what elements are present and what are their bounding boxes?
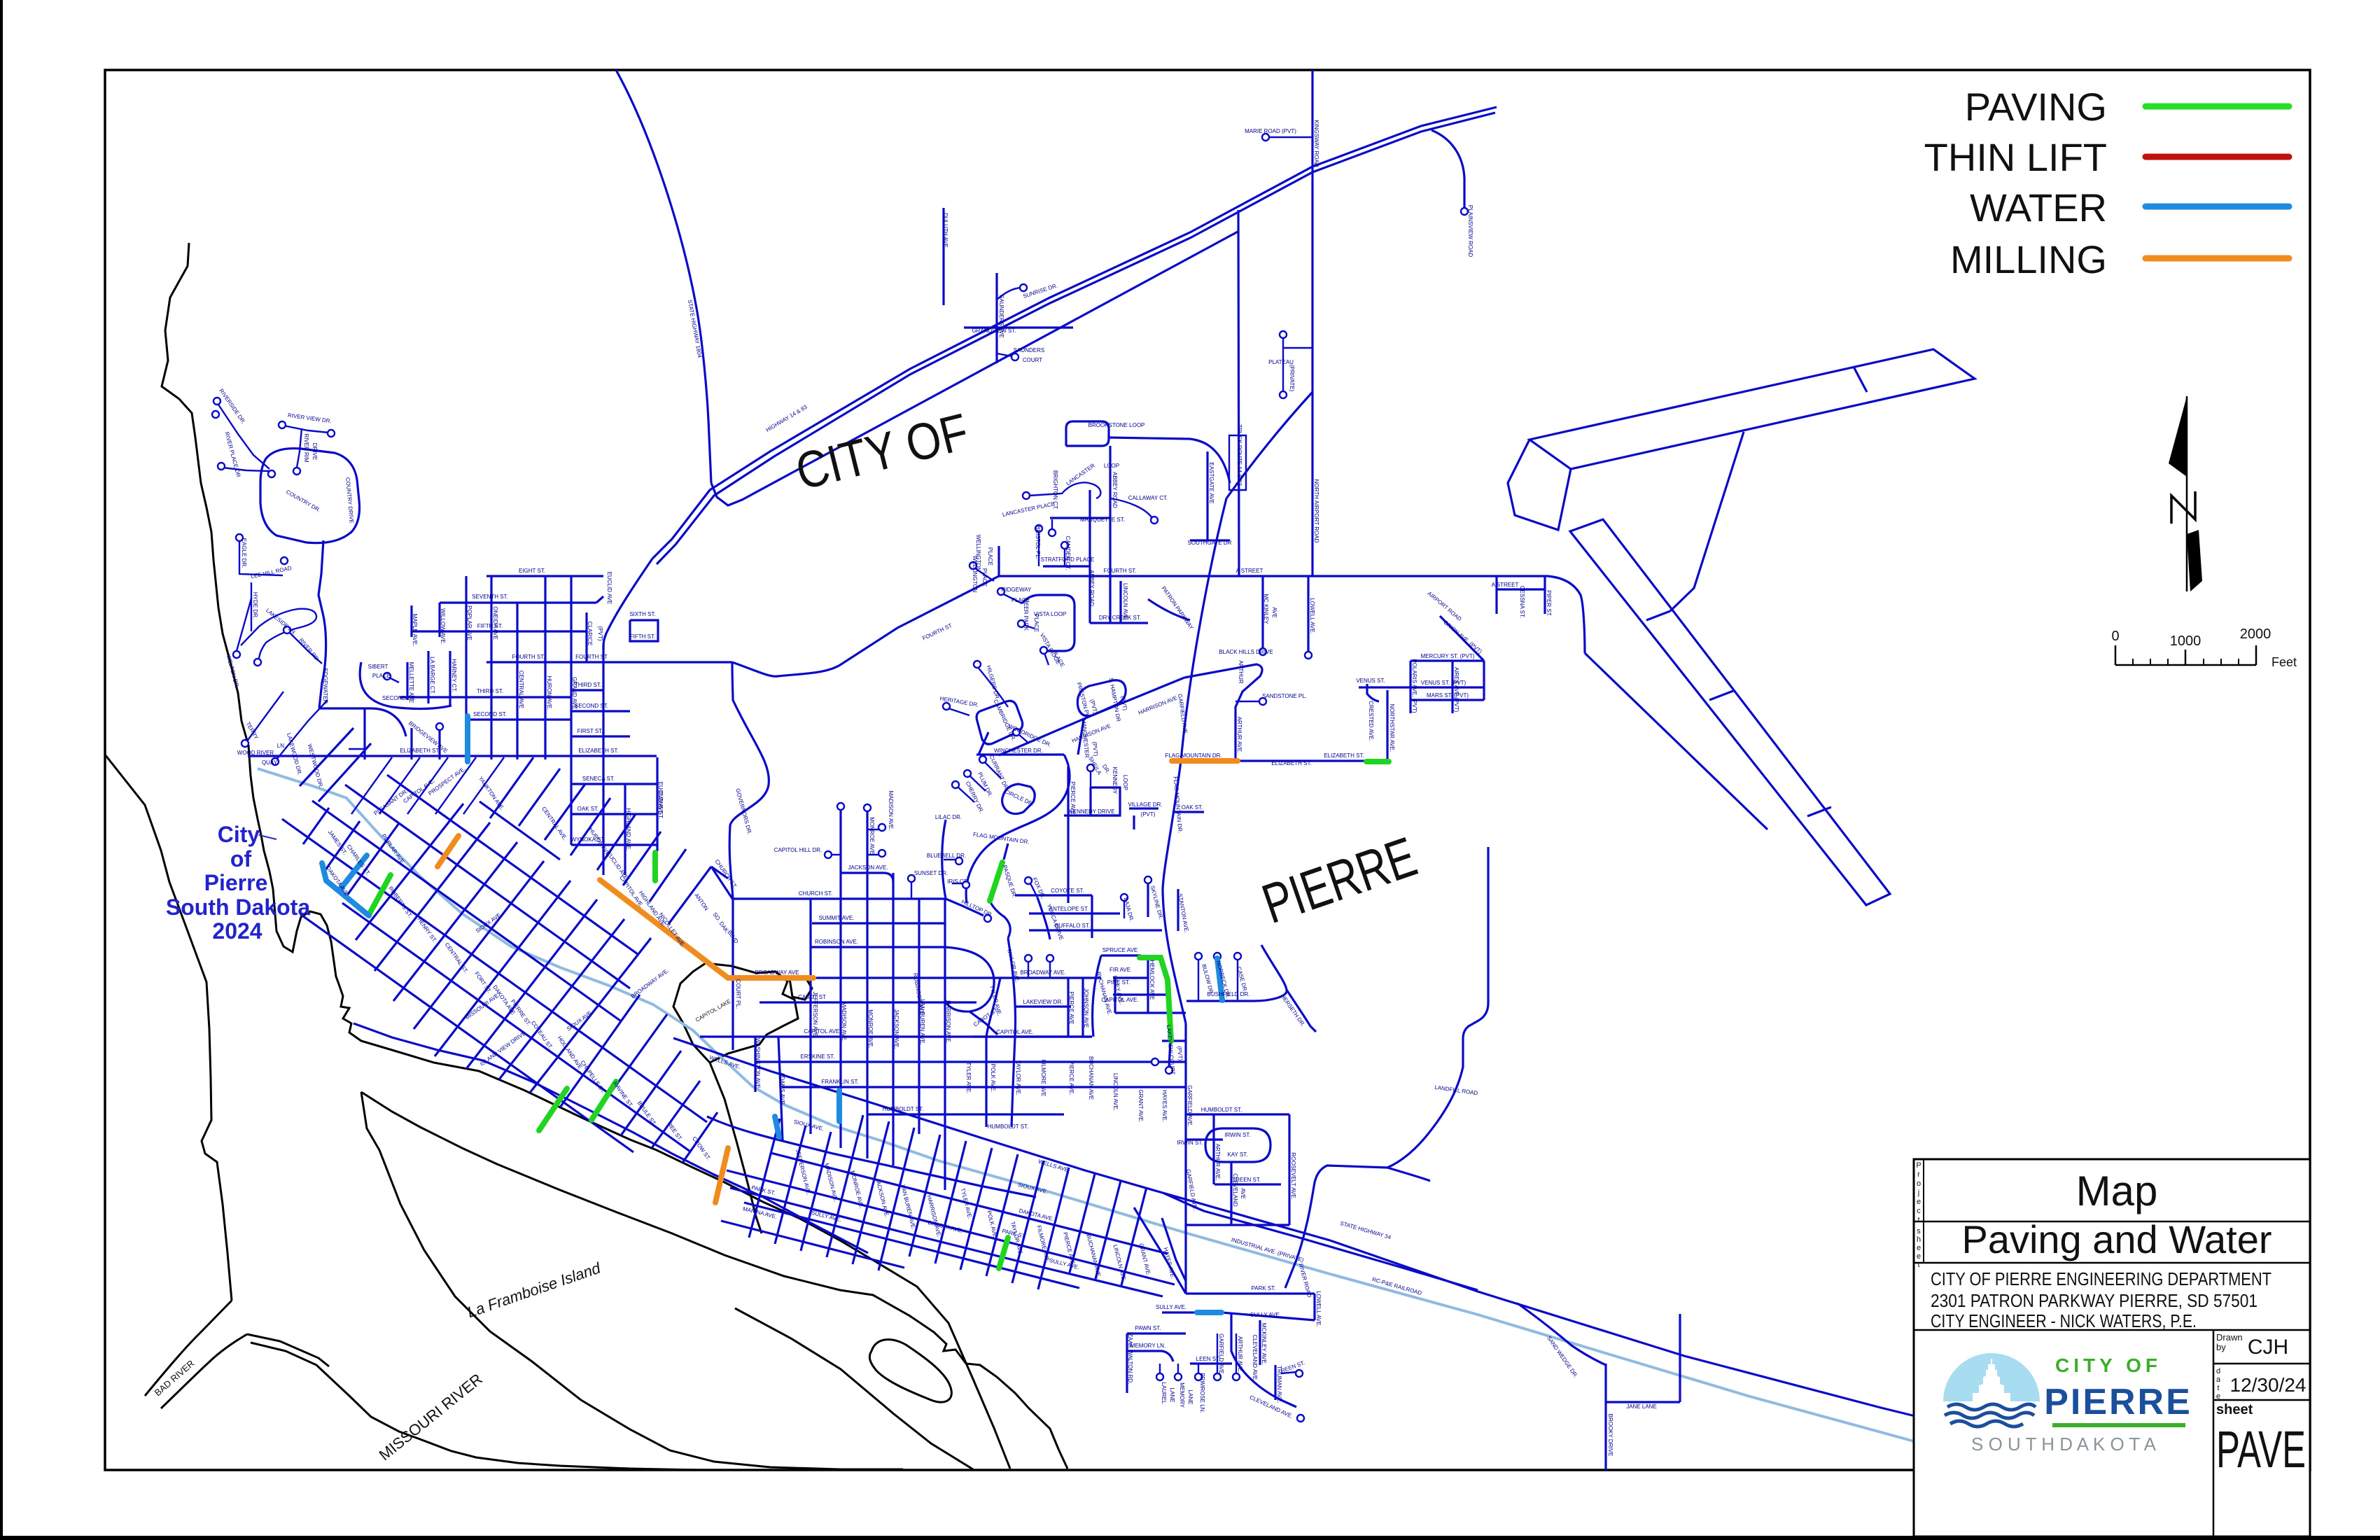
svg-text:by: by <box>2216 1342 2226 1352</box>
svg-text:FLAG MOUNTAIN DR.: FLAG MOUNTAIN DR. <box>1165 752 1221 759</box>
svg-text:LA BARGE CT.: LA BARGE CT. <box>429 657 435 694</box>
svg-text:POLK AVE.: POLK AVE. <box>990 1064 996 1093</box>
svg-text:MARIE ROAD (PVT): MARIE ROAD (PVT) <box>1245 128 1296 134</box>
svg-text:PIERCE AVE: PIERCE AVE <box>1068 992 1074 1025</box>
svg-text:SPRUCE AVE: SPRUCE AVE <box>1102 947 1138 953</box>
svg-text:IRWIN ST.: IRWIN ST. <box>1224 1132 1250 1138</box>
svg-text:JACKSON AVE.: JACKSON AVE. <box>848 864 888 871</box>
svg-text:BUCHANAN AVE: BUCHANAN AVE <box>1088 1056 1094 1100</box>
svg-text:GARFIELD AVE.: GARFIELD AVE. <box>1218 1333 1224 1375</box>
svg-text:LN.: LN. <box>277 743 286 749</box>
svg-text:CITY OF: CITY OF <box>2055 1354 2162 1376</box>
svg-text:VILLAGE DR.: VILLAGE DR. <box>1128 801 1162 808</box>
svg-text:ANTELOPE ST.: ANTELOPE ST. <box>1049 906 1088 912</box>
svg-text:DRY CREEK ST.: DRY CREEK ST. <box>1099 615 1141 621</box>
svg-text:SENECA ST.: SENECA ST. <box>582 776 615 782</box>
svg-text:FIFTH ST.: FIFTH ST. <box>630 633 655 640</box>
svg-text:PLACE: PLACE <box>1033 614 1039 632</box>
svg-text:CAPITOL AVE.: CAPITOL AVE. <box>996 1029 1033 1035</box>
svg-text:(PVT): (PVT) <box>597 626 603 641</box>
svg-text:CAPITOL HILL DR.: CAPITOL HILL DR. <box>774 847 822 853</box>
svg-text:SIBERT: SIBERT <box>368 664 388 670</box>
svg-text:LAKEVIEW DR.: LAKEVIEW DR. <box>1023 999 1063 1005</box>
svg-text:GRANT AVE.: GRANT AVE. <box>1137 1089 1144 1122</box>
svg-text:ELIZABETH ST.: ELIZABETH ST. <box>400 748 440 754</box>
svg-text:THIRD ST.: THIRD ST. <box>477 688 503 694</box>
svg-text:LANE: LANE <box>1187 1390 1193 1405</box>
svg-text:LOOP: LOOP <box>1104 463 1119 469</box>
svg-text:o: o <box>1917 1179 1921 1188</box>
svg-text:EASTGATE AVE: EASTGATE AVE <box>1208 462 1214 503</box>
svg-text:t: t <box>1917 1216 1919 1224</box>
svg-text:MADISON AVE.: MADISON AVE. <box>841 1002 847 1042</box>
svg-text:BLACK HILLS DRIVE: BLACK HILLS DRIVE <box>1219 649 1273 655</box>
svg-text:A STREET: A STREET <box>1492 582 1519 588</box>
svg-text:PAWN ST.: PAWN ST. <box>1135 1325 1161 1331</box>
svg-text:e: e <box>1917 1198 1921 1206</box>
svg-text:JANE LANE: JANE LANE <box>1626 1403 1657 1410</box>
svg-text:MERCURY ST. (PVT): MERCURY ST. (PVT) <box>1420 653 1474 659</box>
svg-text:P: P <box>1916 1161 1921 1170</box>
svg-text:COYOTE ST.: COYOTE ST. <box>1051 888 1084 894</box>
svg-text:PIERRE: PIERRE <box>2044 1382 2192 1422</box>
svg-text:(PVT): (PVT) <box>1091 741 1099 757</box>
svg-text:S O U T H D A K O T A: S O U T H D A K O T A <box>1971 1434 2157 1455</box>
svg-text:COURT: COURT <box>1023 357 1042 363</box>
svg-text:ELIZABETH ST.: ELIZABETH ST. <box>1324 752 1364 759</box>
svg-text:WINCHESTER DR.: WINCHESTER DR. <box>994 748 1043 754</box>
svg-text:HARRISON AVE.: HARRISON AVE. <box>945 1000 951 1044</box>
svg-text:MARS ST. (PVT): MARS ST. (PVT) <box>1427 692 1469 699</box>
svg-text:LEEN ST.: LEEN ST. <box>1196 1356 1221 1362</box>
svg-text:CLEVELAND AVE.: CLEVELAND AVE. <box>1252 1335 1258 1382</box>
svg-text:FIRST ST.: FIRST ST. <box>577 728 603 734</box>
svg-text:MAPLE AVE.: MAPLE AVE. <box>412 614 418 647</box>
svg-text:WOOD RIVER: WOOD RIVER <box>237 750 274 756</box>
svg-text:Drawn: Drawn <box>2216 1332 2243 1343</box>
svg-text:sheet: sheet <box>2216 1402 2253 1417</box>
svg-text:CAMDEN CT.: CAMDEN CT. <box>1065 536 1071 570</box>
svg-text:WILLOW AVE.: WILLOW AVE. <box>440 608 446 645</box>
svg-text:AIRES AVE (PVT): AIRES AVE (PVT) <box>1453 667 1459 713</box>
svg-text:EUCLID AVE: EUCLID AVE <box>606 572 612 605</box>
svg-text:POLARIS AVE. (PVT): POLARIS AVE. (PVT) <box>1411 659 1417 713</box>
svg-text:AVE: AVE <box>1271 607 1277 617</box>
svg-text:BROOKSTONE LOOP: BROOKSTONE LOOP <box>1088 422 1145 428</box>
svg-text:HUMBOLDT ST.: HUMBOLDT ST. <box>883 1106 924 1112</box>
svg-text:SULLY AVE.: SULLY AVE. <box>1156 1304 1186 1310</box>
svg-text:POPLAR AVE: POPLAR AVE <box>466 605 472 640</box>
svg-text:WATER: WATER <box>1970 185 2107 230</box>
svg-text:LOWELL AVE.: LOWELL AVE. <box>1309 598 1315 634</box>
svg-text:j: j <box>1917 1189 1919 1197</box>
svg-text:PAVE: PAVE <box>2216 1420 2306 1478</box>
svg-text:JEFFERSON AVE.: JEFFERSON AVE. <box>812 992 818 1039</box>
svg-text:SEVENTH ST.: SEVENTH ST. <box>472 594 508 600</box>
svg-text:BUSHFIELD DR.: BUSHFIELD DR. <box>1207 991 1250 997</box>
svg-text:(PVT): (PVT) <box>1141 811 1156 818</box>
svg-text:LOWELL AVE.: LOWELL AVE. <box>1315 1291 1322 1327</box>
svg-text:e: e <box>1917 1252 1921 1261</box>
svg-text:Pierre: Pierre <box>204 870 268 895</box>
svg-text:of: of <box>230 846 252 871</box>
svg-text:FIR AVE: FIR AVE <box>1109 967 1130 973</box>
svg-text:KENNEDY DRIVE: KENNEDY DRIVE <box>1069 808 1114 815</box>
svg-text:MEMORY: MEMORY <box>1179 1382 1185 1408</box>
svg-text:ERSKINE ST.: ERSKINE ST. <box>801 1053 835 1060</box>
svg-text:NORTHSTAR AVE.: NORTHSTAR AVE. <box>1389 704 1395 752</box>
svg-text:KENNEDY: KENNEDY <box>1112 767 1118 794</box>
svg-text:SECOND ST.: SECOND ST. <box>473 711 507 717</box>
svg-text:c: c <box>1917 1207 1921 1215</box>
svg-text:FOURTH ST.: FOURTH ST. <box>1104 568 1137 574</box>
svg-text:0: 0 <box>2111 629 2119 644</box>
svg-text:Map: Map <box>2076 1168 2158 1214</box>
svg-text:t: t <box>1917 1261 1919 1269</box>
svg-text:d: d <box>2216 1367 2220 1375</box>
svg-text:BROOKY DRIVE: BROOKY DRIVE <box>1607 1414 1613 1457</box>
svg-text:LAUREL: LAUREL <box>1161 1382 1167 1404</box>
svg-text:DRIVE: DRIVE <box>311 443 318 460</box>
svg-text:HARNEY CT.: HARNEY CT. <box>451 659 457 692</box>
svg-text:SIXTH ST.: SIXTH ST. <box>629 611 655 617</box>
svg-text:EIGHT ST.: EIGHT ST. <box>519 568 545 574</box>
svg-text:IZAAK WALTON RD.: IZAAK WALTON RD. <box>1127 1332 1133 1385</box>
svg-text:TRUCK ROUTE 14 & 83: TRUCK ROUTE 14 & 83 <box>1236 424 1242 486</box>
svg-text:JACKSON AVE.: JACKSON AVE. <box>893 1009 899 1049</box>
svg-text:HYDE DR.: HYDE DR. <box>252 592 258 619</box>
svg-text:MILLING: MILLING <box>1950 237 2107 281</box>
svg-text:A STREET: A STREET <box>1236 568 1263 574</box>
svg-text:RIVER RIM: RIVER RIM <box>303 433 309 463</box>
svg-text:NORTH AIRPORT ROAD: NORTH AIRPORT ROAD <box>1313 479 1319 543</box>
svg-text:(PRIVATE): (PRIVATE) <box>1289 365 1295 392</box>
svg-text:LILAC DR.: LILAC DR. <box>935 814 962 820</box>
svg-text:CLARICE: CLARICE <box>587 622 593 646</box>
svg-text:LANE: LANE <box>1169 1388 1175 1403</box>
svg-text:PLACE: PLACE <box>372 673 391 679</box>
svg-text:12/30/24: 12/30/24 <box>2230 1374 2306 1396</box>
svg-text:THIRD ST.: THIRD ST. <box>575 682 601 688</box>
svg-text:FOURTH ST: FOURTH ST <box>575 654 608 660</box>
svg-text:DULUTH AVE.: DULUTH AVE. <box>942 213 948 249</box>
svg-text:ROBINSON AVE.: ROBINSON AVE. <box>815 939 858 945</box>
svg-text:EDGEWATER: EDGEWATER <box>322 668 328 704</box>
svg-text:BRISTOL PL.: BRISTOL PL. <box>1035 526 1041 559</box>
svg-text:ELIZABETH ST.: ELIZABETH ST. <box>578 748 618 754</box>
svg-text:HUMBOLDT ST.: HUMBOLDT ST. <box>1201 1107 1242 1113</box>
svg-text:PIPER ST.: PIPER ST. <box>1546 590 1552 617</box>
svg-text:CHURCH ST.: CHURCH ST. <box>799 890 832 897</box>
svg-text:HURON AVE.: HURON AVE. <box>546 676 552 710</box>
svg-text:RIDGEWAY: RIDGEWAY <box>1002 587 1032 593</box>
svg-text:SECOND ST.: SECOND ST. <box>575 703 608 709</box>
svg-text:FILMORE AVE: FILMORE AVE <box>1040 1060 1046 1097</box>
svg-text:e: e <box>2216 1392 2220 1401</box>
svg-text:CLEVELAND: CLEVELAND <box>1232 1173 1238 1207</box>
svg-text:South Dakota: South Dakota <box>166 895 310 920</box>
svg-text:h: h <box>1917 1235 1921 1244</box>
svg-text:EAGLE DR.: EAGLE DR. <box>241 538 247 568</box>
svg-text:Feet: Feet <box>2271 655 2297 669</box>
svg-text:FRANKLIN ST.: FRANKLIN ST. <box>821 1079 858 1085</box>
svg-text:CESSNA ST.: CESSNA ST. <box>1519 586 1525 618</box>
svg-text:Paving and Water: Paving and Water <box>1961 1217 2271 1261</box>
svg-text:t: t <box>2217 1384 2219 1392</box>
svg-text:ROOSEVELT AVE.: ROOSEVELT AVE. <box>1290 1152 1296 1200</box>
svg-text:ABBEY ROAD: ABBEY ROAD <box>1088 570 1095 606</box>
svg-text:2000: 2000 <box>2240 626 2271 642</box>
svg-text:PLAINSVIEW ROAD: PLAINSVIEW ROAD <box>1467 205 1473 257</box>
svg-text:HIGHLAND AVE.: HIGHLAND AVE. <box>625 808 631 851</box>
svg-text:THIN LIFT: THIN LIFT <box>1924 135 2107 179</box>
svg-text:IRWIN ST.: IRWIN ST. <box>1177 1140 1203 1146</box>
svg-text:IRIS CT.: IRIS CT. <box>947 878 968 885</box>
svg-text:a: a <box>2216 1375 2221 1384</box>
svg-text:QUAY: QUAY <box>262 759 278 766</box>
svg-text:HUMBOLDT ST.: HUMBOLDT ST. <box>988 1123 1029 1130</box>
svg-text:BUFFALO ST.: BUFFALO ST. <box>1055 923 1090 929</box>
svg-text:OAK ST.: OAK ST. <box>1182 804 1203 811</box>
svg-text:FIFTH ST.: FIFTH ST. <box>477 623 503 629</box>
svg-text:KAY ST.: KAY ST. <box>1227 1151 1247 1158</box>
svg-text:ARTHUR: ARTHUR <box>1238 660 1244 683</box>
svg-text:KINGSWAY ROAD: KINGSWAY ROAD <box>1313 120 1319 167</box>
svg-text:GRANDVIEW ST.: GRANDVIEW ST. <box>972 328 1016 334</box>
svg-text:TYLER AVE.: TYLER AVE. <box>965 1062 972 1093</box>
svg-text:PLACE: PLACE <box>981 568 988 587</box>
svg-text:MEMORY LN.: MEMORY LN. <box>1130 1343 1165 1349</box>
svg-text:PIERCE AVE.: PIERCE AVE. <box>1068 1060 1074 1095</box>
svg-text:MADISON AVE.: MADISON AVE. <box>888 791 894 831</box>
svg-text:WASHINGTON AVE.: WASHINGTON AVE. <box>755 1038 761 1090</box>
svg-text:CENTRAL AVE: CENTRAL AVE <box>518 671 524 708</box>
svg-text:PRIMROSE LN.: PRIMROSE LN. <box>1199 1373 1205 1413</box>
svg-text:ABBEY ROAD: ABBEY ROAD <box>1112 472 1118 508</box>
svg-text:ELIZABETH ST.: ELIZABETH ST. <box>1271 760 1311 766</box>
svg-text:SOUTHGATE DR: SOUTHGATE DR <box>1188 540 1232 546</box>
svg-text:PARK ST.: PARK ST. <box>1252 1285 1276 1291</box>
svg-text:AVE: AVE <box>1240 1188 1246 1198</box>
svg-text:MONROE AVE.: MONROE AVE. <box>867 1009 874 1048</box>
svg-text:CITY OF PIERRE ENGINEERING DEP: CITY OF PIERRE ENGINEERING DEPARTMENT <box>1931 1268 2271 1289</box>
svg-text:2024: 2024 <box>212 918 262 944</box>
svg-text:CRESTED AVE.: CRESTED AVE. <box>1368 701 1374 741</box>
svg-text:EVANS ST.: EVANS ST. <box>657 791 664 819</box>
svg-text:TAYLOR AVE.: TAYLOR AVE. <box>1015 1060 1021 1095</box>
svg-text:e: e <box>1917 1244 1921 1252</box>
svg-text:CAPITOL AVE.: CAPITOL AVE. <box>804 1028 841 1035</box>
svg-text:ARTHUR AVE.: ARTHUR AVE. <box>1236 717 1242 754</box>
svg-text:ARTHUR AVE.: ARTHUR AVE. <box>1237 1336 1243 1373</box>
svg-text:PLACE: PLACE <box>987 547 993 566</box>
svg-text:VENUS ST.: VENUS ST. <box>1356 678 1385 684</box>
svg-text:FOURTH ST.: FOURTH ST. <box>512 654 545 660</box>
svg-text:OAK ST.: OAK ST. <box>577 806 599 812</box>
svg-text:2301 PATRON PARKWAY PIERRE, SD: 2301 PATRON PARKWAY PIERRE, SD 57501 <box>1931 1290 2257 1311</box>
svg-text:MC KINLEY: MC KINLEY <box>1263 594 1269 624</box>
svg-text:BLUEBELL DR.: BLUEBELL DR. <box>927 853 966 859</box>
svg-text:HEMLOCK AVE: HEMLOCK AVE <box>1149 960 1155 1000</box>
svg-text:MONROE AVE.: MONROE AVE. <box>869 817 875 855</box>
svg-text:CITY ENGINEER - NICK WATERS, P: CITY ENGINEER - NICK WATERS, P.E. <box>1931 1310 2197 1331</box>
svg-text:ARTHUR AVE.: ARTHUR AVE. <box>1214 1144 1221 1181</box>
svg-text:SUMMIT AVE.: SUMMIT AVE. <box>819 915 855 921</box>
svg-text:HAYES AVE.: HAYES AVE. <box>1161 1090 1168 1122</box>
svg-text:ADAMS AVE: ADAMS AVE <box>779 1072 785 1105</box>
svg-text:MARQUETTE ST.: MARQUETTE ST. <box>1080 517 1125 523</box>
svg-text:LOOP: LOOP <box>1122 775 1128 790</box>
svg-text:(PVT): (PVT) <box>1176 1046 1184 1061</box>
svg-text:MELLETTE AVE: MELLETTE AVE <box>408 662 414 703</box>
svg-text:LINCOLN AVE.: LINCOLN AVE. <box>1112 1073 1119 1111</box>
svg-text:WELLINGTON: WELLINGTON <box>972 556 978 593</box>
svg-text:BROADWAY AVE.: BROADWAY AVE. <box>1020 969 1065 976</box>
svg-text:r: r <box>1917 1170 1920 1179</box>
svg-text:BRIGHTON CT.: BRIGHTON CT. <box>1052 470 1058 510</box>
svg-text:BROADWAY AVE: BROADWAY AVE <box>755 969 799 976</box>
svg-text:SUNSET DR.: SUNSET DR. <box>914 870 948 876</box>
svg-text:PAVING: PAVING <box>1965 85 2107 129</box>
svg-text:SULLY AVE.: SULLY AVE. <box>1250 1312 1281 1318</box>
svg-text:1000: 1000 <box>2170 633 2201 649</box>
svg-text:MCKINLEY AVE.: MCKINLEY AVE. <box>1261 1323 1267 1365</box>
svg-text:SANDSTONE PL.: SANDSTONE PL. <box>1262 693 1307 699</box>
svg-text:DEER PARK: DEER PARK <box>1023 598 1029 631</box>
svg-text:SAUNDERS: SAUNDERS <box>1014 347 1044 353</box>
svg-text:GARFIELD AVE.: GARFIELD AVE. <box>1186 1085 1193 1126</box>
svg-text:CALLAWAY CT.: CALLAWAY CT. <box>1128 495 1168 501</box>
svg-text:COURT PL.: COURT PL. <box>735 979 741 1009</box>
svg-text:JOHNSON AVE: JOHNSON AVE <box>1083 988 1089 1028</box>
svg-text:s: s <box>1917 1227 1921 1235</box>
svg-text:City: City <box>218 822 260 847</box>
svg-text:CJH: CJH <box>2248 1336 2288 1359</box>
